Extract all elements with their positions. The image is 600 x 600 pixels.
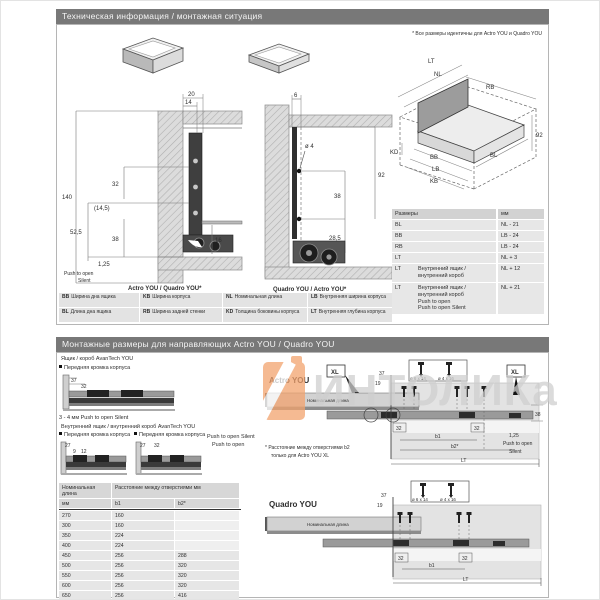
svg-text:ø 4 x 16: ø 4 x 16 [440, 497, 456, 502]
svg-text:27: 27 [65, 443, 71, 449]
svg-text:ø 6 x 14: ø 6 x 14 [412, 497, 428, 502]
actro-rail-drawing: ø 6 x 14 ø 4 x 16 XL XL Actro YOU Номина… [263, 359, 547, 475]
svg-text:32: 32 [154, 443, 160, 449]
section-title-mounting: Монтажные размеры для направляющих Actro… [56, 337, 549, 352]
legend-item: KBШирина корпуса [140, 293, 222, 307]
legend-item: RBШирина задней стенки [140, 308, 222, 322]
inner-drawer-label: Внутренний ящик / внутренний короб AvanT… [61, 424, 195, 430]
table-row: LTВнутренний ящик / внутренний короб Pus… [392, 283, 544, 315]
inner-drawer-mini-drawing-1: 27 9 12 [59, 440, 129, 482]
svg-text:32: 32 [462, 556, 468, 562]
legend-item: BLДлина дна ящика [59, 308, 139, 322]
svg-text:b1: b1 [429, 563, 435, 569]
mounting-panel: Ящик / короб AvanTech YOU Передняя кромк… [56, 352, 549, 598]
svg-text:6: 6 [294, 93, 298, 99]
front-edge-label-2: Передняя кромка корпуса [59, 432, 130, 438]
cross-section-actro: 20 14 140 32 (14,5) 52,5 38 16 1,25 Push… [62, 91, 244, 293]
catalog-page: Техническая информация / монтажная ситуа… [0, 0, 600, 600]
iso-dimension-diagram: LT NL RB 92 KD BB BL LB KB [390, 53, 546, 203]
svg-text:LB: LB [432, 167, 439, 173]
svg-text:38: 38 [535, 412, 541, 418]
svg-text:32: 32 [112, 182, 119, 188]
hole-distance-table: Номинальная длина Расстояние между отвер… [59, 483, 241, 600]
svg-text:BB: BB [430, 155, 438, 161]
svg-text:KB: KB [430, 179, 438, 185]
svg-text:Actro YOU: Actro YOU [269, 376, 310, 385]
svg-text:ø 4 x 16: ø 4 x 16 [438, 376, 454, 381]
table-row: LTNL + 3 [392, 253, 544, 263]
svg-text:14: 14 [185, 100, 192, 106]
gap-note: 3 - 4 мм Push to open Silent [59, 415, 128, 421]
table-row: RBLB - 24 [392, 242, 544, 252]
svg-text:Push to open: Push to open [503, 441, 533, 447]
dimensions-table: Размеры мм BLNL - 21 BBLB - 24 RBLB - 24… [392, 209, 544, 315]
svg-text:32: 32 [474, 426, 480, 432]
svg-text:b1: b1 [435, 434, 441, 440]
drawer-iso-icon [109, 33, 191, 81]
quadro-rail-drawing: ø 6 x 14 ø 4 x 16 Quadro YOU Номинальная… [263, 479, 547, 595]
svg-text:LT: LT [461, 458, 466, 464]
svg-text:37: 37 [71, 378, 77, 384]
svg-text:32: 32 [396, 426, 402, 432]
push-silent-label: Push to open Silent [207, 434, 255, 440]
svg-text:Push to open: Push to open [64, 271, 94, 277]
svg-text:1,25: 1,25 [98, 262, 110, 268]
svg-text:Actro YOU / Quadro YOU*: Actro YOU / Quadro YOU* [128, 286, 202, 292]
svg-text:32: 32 [398, 556, 404, 562]
table-header-row: Размеры мм [392, 209, 544, 219]
drawer-mount-mini-drawing: 37 32 [59, 373, 181, 415]
svg-text:16: 16 [215, 238, 222, 244]
svg-text:28,5: 28,5 [329, 236, 341, 242]
legend-item: BBШирина дна ящика [59, 293, 139, 307]
svg-text:52,5: 52,5 [70, 230, 82, 236]
legend-item: LBВнутренняя ширина корпуса [308, 293, 392, 307]
inner-drawer-mini-drawing-2: 27 32 [134, 440, 204, 482]
svg-text:ø 4: ø 4 [305, 144, 314, 150]
svg-text:ø 6 x 14: ø 6 x 14 [410, 376, 426, 381]
cross-section-quadro: 6 ø 4 38 92 28,5 Quadro YOU / Actro YOU* [247, 91, 395, 293]
svg-text:12: 12 [81, 449, 87, 455]
svg-text:(14,5): (14,5) [94, 206, 110, 212]
svg-text:BL: BL [490, 153, 498, 159]
table-row: BBLB - 24 [392, 231, 544, 241]
svg-text:RB: RB [486, 85, 494, 91]
drawer-iso-icon-2 [239, 33, 321, 81]
section-title-technical: Техническая информация / монтажная ситуа… [56, 9, 549, 24]
svg-text:140: 140 [62, 195, 73, 201]
svg-text:37: 37 [379, 371, 385, 377]
svg-text:KD: KD [390, 150, 399, 156]
svg-text:Quadro YOU: Quadro YOU [269, 500, 317, 509]
svg-text:92: 92 [378, 173, 385, 179]
svg-text:20: 20 [188, 92, 195, 98]
drawer-box-label: Ящик / короб AvanTech YOU [61, 356, 133, 362]
svg-text:37: 37 [381, 493, 387, 499]
svg-text:* Расстояние между отверстиями: * Расстояние между отверстиями b2 [265, 445, 350, 451]
svg-text:19: 19 [377, 503, 383, 509]
svg-text:XL: XL [511, 370, 519, 376]
svg-text:NL: NL [434, 72, 442, 78]
svg-text:Номинальная длина: Номинальная длина [307, 522, 349, 527]
front-edge-label: Передняя кромка корпуса [59, 365, 130, 371]
legend-item: LTВнутренняя глубина корпуса [308, 308, 392, 322]
table-row: BLNL - 21 [392, 220, 544, 230]
svg-text:b2*: b2* [451, 444, 459, 450]
legend-item: NLНоминальная длина [223, 293, 307, 307]
identical-sizes-note: * Все размеры идентичны для Actro YOU и … [412, 31, 542, 37]
svg-text:1,25: 1,25 [509, 433, 519, 439]
svg-text:38: 38 [334, 194, 341, 200]
push-open-label: Push to open [212, 442, 244, 448]
legend-item: KDТолщина боковины корпуса [223, 308, 307, 322]
svg-text:27: 27 [140, 443, 146, 449]
svg-text:9: 9 [73, 449, 76, 455]
svg-text:32: 32 [81, 384, 87, 390]
svg-text:Silent: Silent [78, 278, 91, 284]
front-edge-label-3: Передняя кромка корпуса [134, 432, 205, 438]
svg-text:LT: LT [428, 59, 435, 65]
table-row: LTВнутренний ящик / внутренний коробNL +… [392, 264, 544, 282]
svg-text:92: 92 [536, 133, 543, 139]
svg-text:XL: XL [331, 370, 339, 376]
svg-text:LT: LT [463, 577, 468, 583]
svg-text:19: 19 [375, 381, 381, 387]
svg-text:только для Actro YOU XL: только для Actro YOU XL [271, 453, 329, 459]
technical-panel: * Все размеры идентичны для Actro YOU и … [56, 24, 549, 325]
svg-text:Номинальная длина: Номинальная длина [307, 398, 349, 403]
svg-text:38: 38 [112, 237, 119, 243]
abbreviation-legend: BBШирина дна ящика KBШирина корпуса NLНо… [59, 293, 391, 322]
